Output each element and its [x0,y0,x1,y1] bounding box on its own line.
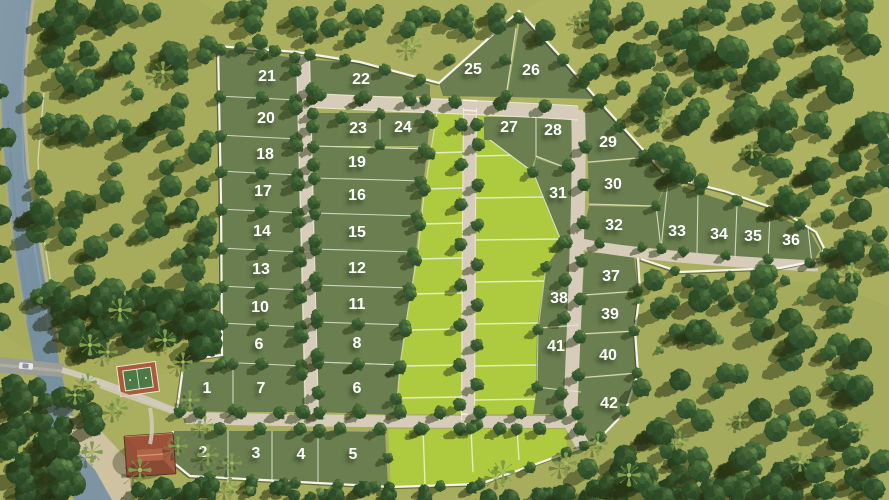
svg-text:24: 24 [394,119,412,136]
svg-text:23: 23 [349,120,367,137]
svg-text:35: 35 [744,228,762,245]
svg-text:42: 42 [600,395,618,412]
svg-text:22: 22 [352,71,370,88]
svg-text:38: 38 [550,290,568,307]
svg-text:40: 40 [599,347,617,364]
svg-text:33: 33 [668,223,686,240]
svg-text:19: 19 [348,154,366,171]
svg-text:28: 28 [544,122,562,139]
svg-text:16: 16 [348,187,366,204]
svg-text:11: 11 [349,296,366,313]
svg-text:25: 25 [464,61,482,78]
svg-text:30: 30 [604,176,622,193]
svg-text:32: 32 [605,217,623,234]
svg-text:14: 14 [253,223,271,240]
svg-text:37: 37 [602,268,620,285]
svg-text:41: 41 [547,338,565,355]
svg-text:31: 31 [549,185,567,202]
svg-text:12: 12 [348,260,366,277]
svg-text:4: 4 [297,446,306,463]
svg-text:6: 6 [353,380,362,397]
svg-text:13: 13 [252,261,270,278]
svg-text:36: 36 [782,232,800,249]
svg-text:5: 5 [349,446,358,463]
svg-text:27: 27 [500,119,518,136]
svg-text:26: 26 [522,62,540,79]
svg-text:34: 34 [710,226,728,243]
svg-text:8: 8 [353,335,362,352]
svg-text:15: 15 [348,224,366,241]
svg-text:21: 21 [258,68,276,85]
svg-text:20: 20 [257,110,275,127]
svg-text:7: 7 [257,380,266,397]
svg-text:18: 18 [256,146,274,163]
svg-text:6: 6 [255,336,264,353]
svg-text:39: 39 [601,306,619,323]
svg-text:3: 3 [252,445,261,462]
svg-text:17: 17 [254,183,272,200]
svg-text:29: 29 [599,134,617,151]
svg-text:1: 1 [203,380,212,397]
svg-text:10: 10 [251,299,269,316]
